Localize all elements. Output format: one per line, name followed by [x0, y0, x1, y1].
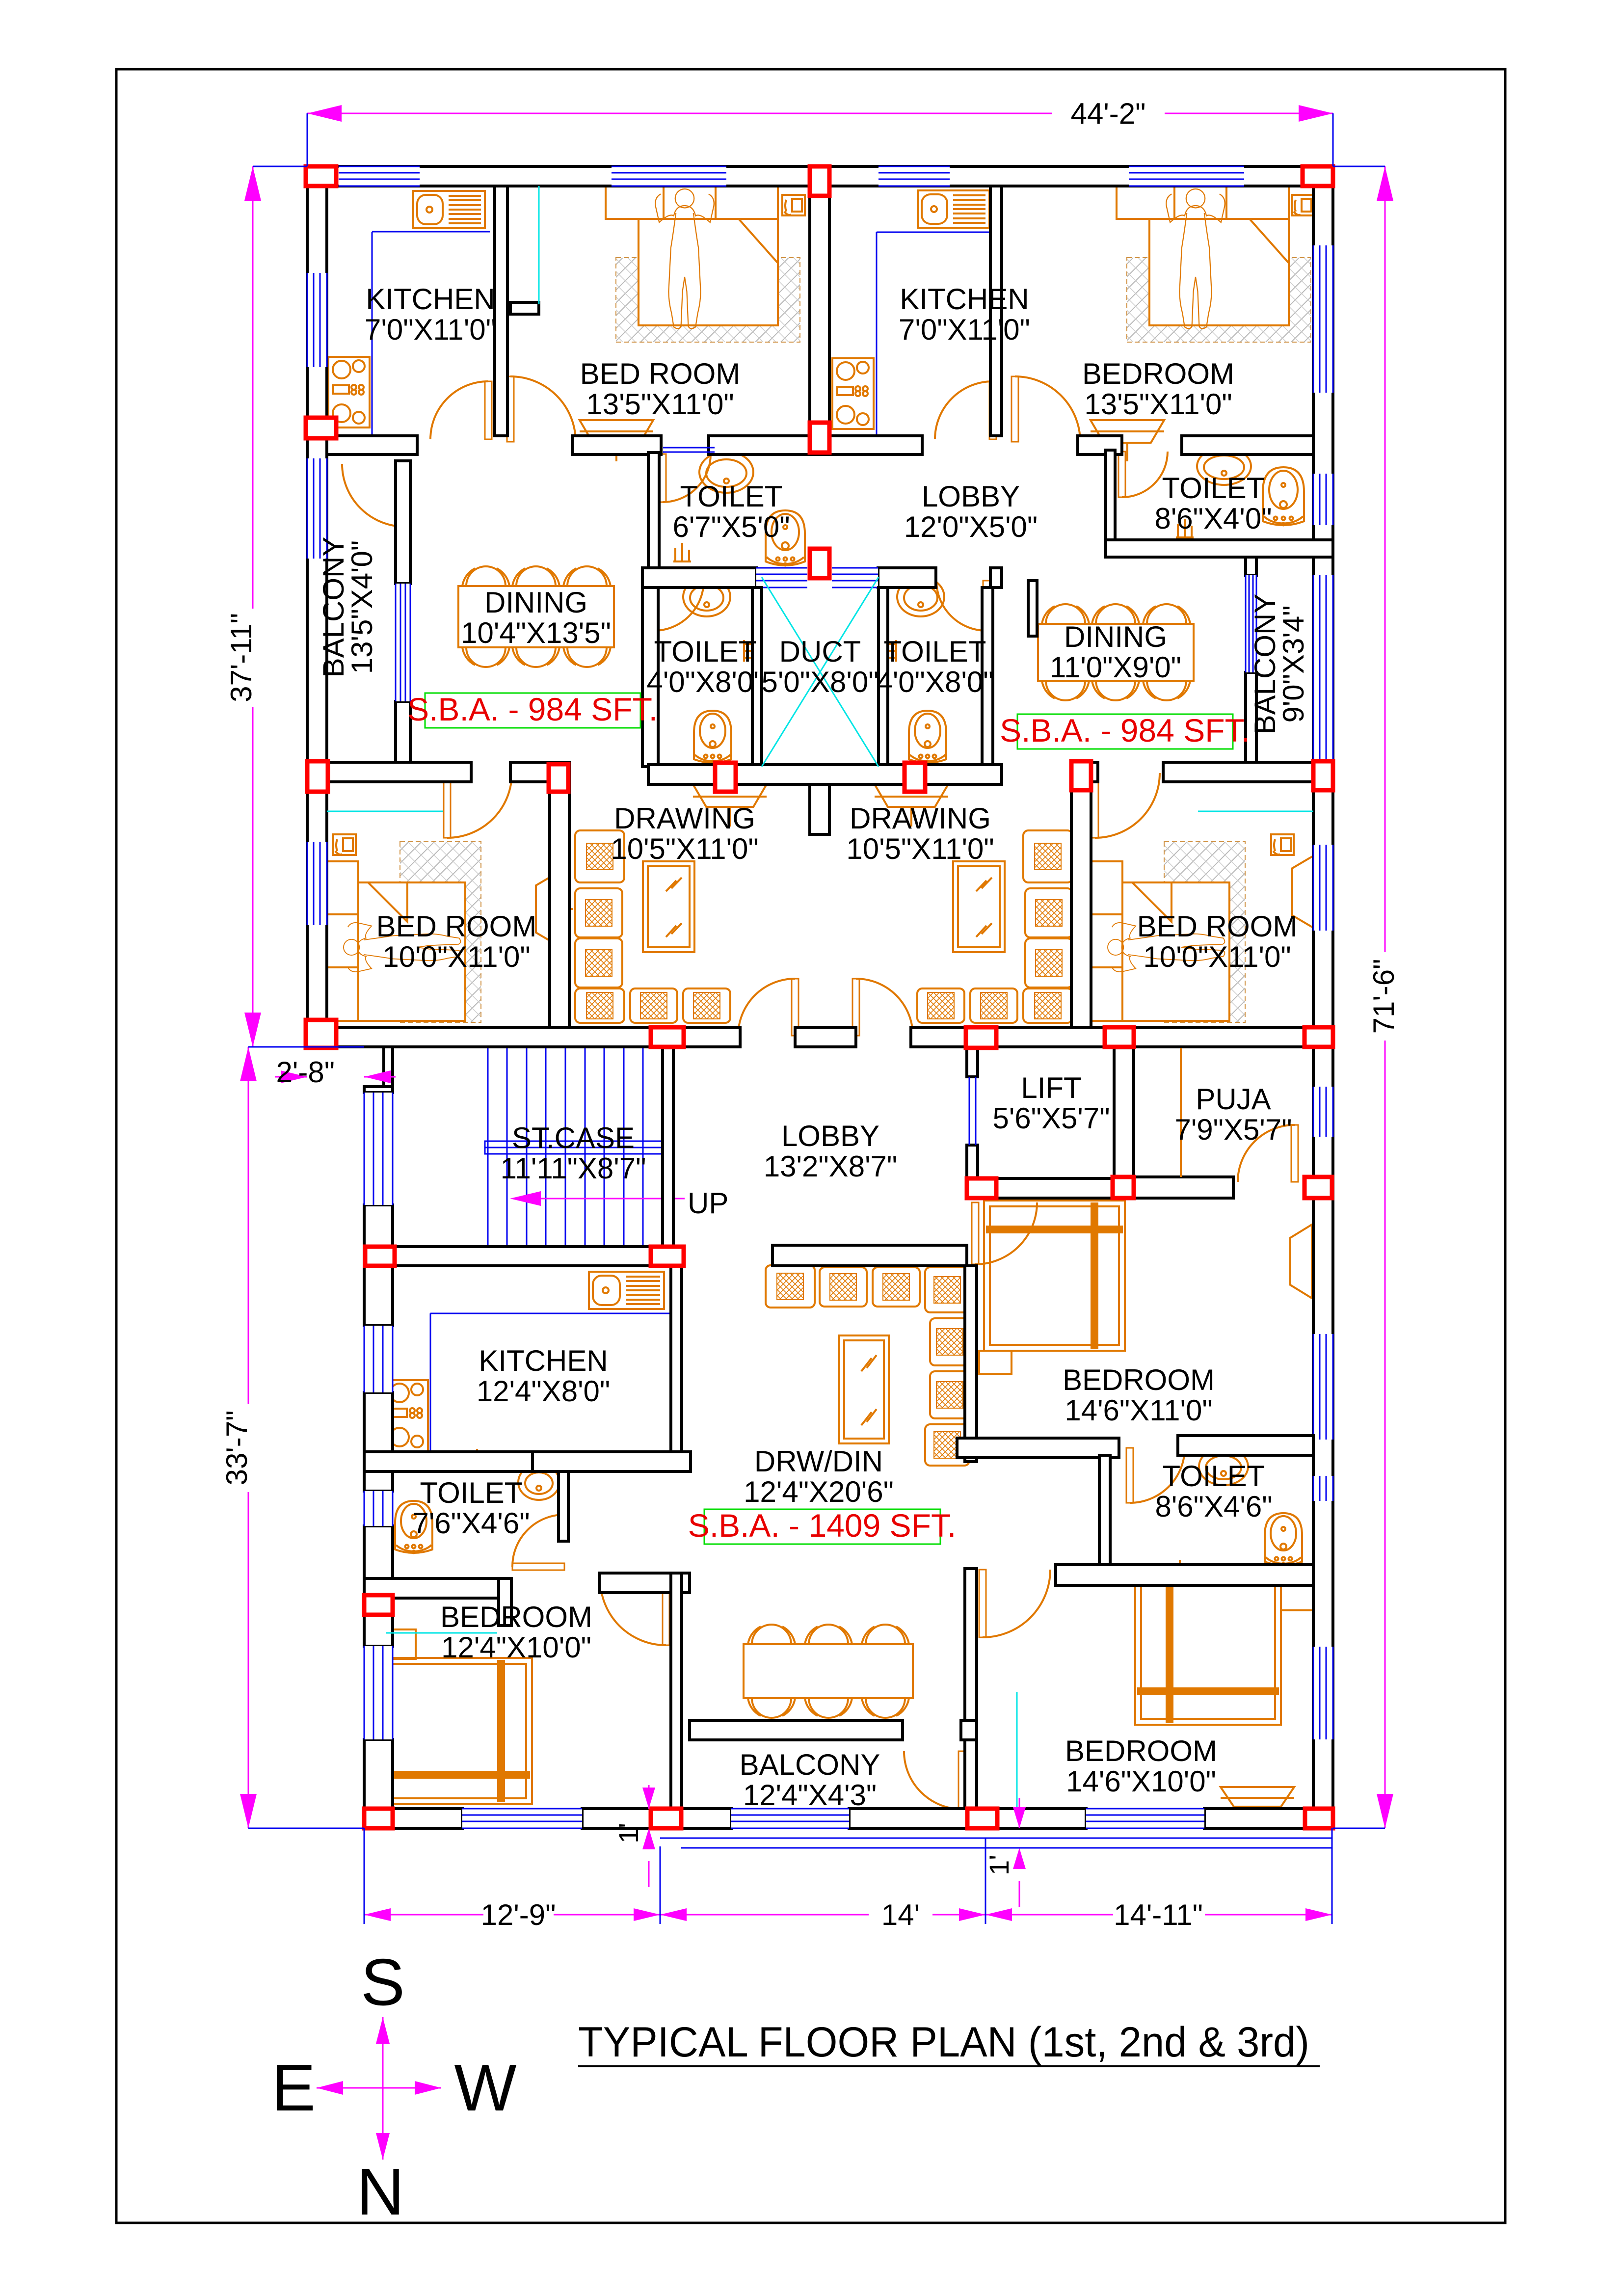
svg-text:9'0"X3'4": 9'0"X3'4" [1277, 605, 1310, 722]
svg-text:37'-11": 37'-11" [225, 613, 258, 702]
svg-text:11'11"X8'7": 11'11"X8'7" [501, 1152, 646, 1185]
svg-text:DRW/DIN: DRW/DIN [754, 1445, 883, 1478]
svg-text:DUCT: DUCT [779, 635, 861, 668]
svg-text:BEDROOM: BEDROOM [1065, 1735, 1217, 1767]
svg-text:BEDROOM: BEDROOM [1082, 357, 1234, 390]
svg-text:1': 1' [613, 1823, 644, 1843]
svg-text:13'5"X4'0": 13'5"X4'0" [346, 540, 378, 674]
svg-text:7'0"X11'0": 7'0"X11'0" [365, 313, 496, 346]
svg-text:12'-9": 12'-9" [481, 1898, 556, 1931]
svg-text:14': 14' [881, 1898, 920, 1931]
svg-text:BALCONY: BALCONY [740, 1748, 880, 1781]
svg-text:4'0"X8'0": 4'0"X8'0" [876, 666, 993, 698]
svg-text:S.B.A. - 984 SFT.: S.B.A. - 984 SFT. [407, 691, 658, 727]
svg-text:DINING: DINING [1064, 620, 1167, 653]
svg-text:5'6"X5'7": 5'6"X5'7" [992, 1102, 1110, 1135]
svg-text:10'5"X11'0": 10'5"X11'0" [611, 832, 758, 865]
svg-text:14'6"X11'0": 14'6"X11'0" [1065, 1394, 1212, 1427]
svg-text:7'9"X5'7": 7'9"X5'7" [1174, 1113, 1292, 1146]
svg-text:14'6"X10'0": 14'6"X10'0" [1066, 1765, 1216, 1798]
svg-text:10'0"X11'0": 10'0"X11'0" [382, 940, 530, 973]
svg-text:7'6"X4'6": 7'6"X4'6" [412, 1507, 530, 1540]
svg-text:7'0"X11'0": 7'0"X11'0" [899, 313, 1030, 346]
svg-text:12'4"X8'0": 12'4"X8'0" [477, 1375, 610, 1408]
svg-text:12'4"X20'6": 12'4"X20'6" [744, 1475, 894, 1508]
svg-text:10'0"X11'0": 10'0"X11'0" [1143, 940, 1291, 973]
svg-text:ST.CASE: ST.CASE [512, 1121, 635, 1154]
svg-text:TOILET: TOILET [654, 635, 757, 668]
svg-text:DRAWING: DRAWING [614, 802, 755, 835]
svg-text:TOILET: TOILET [420, 1476, 523, 1509]
svg-text:BED ROOM: BED ROOM [376, 910, 537, 943]
svg-text:KITCHEN: KITCHEN [366, 283, 495, 316]
svg-text:LOBBY: LOBBY [781, 1120, 879, 1152]
svg-text:33'-7": 33'-7" [220, 1411, 253, 1486]
svg-text:8'6"X4'0": 8'6"X4'0" [1154, 502, 1272, 535]
svg-text:BED ROOM: BED ROOM [1137, 910, 1298, 943]
svg-text:44'-2": 44'-2" [1071, 97, 1146, 130]
svg-text:BEDROOM: BEDROOM [1063, 1363, 1215, 1396]
svg-text:PUJA: PUJA [1196, 1083, 1271, 1116]
svg-text:N: N [356, 2155, 404, 2229]
svg-text:LIFT: LIFT [1021, 1071, 1081, 1104]
svg-text:13'2"X8'7": 13'2"X8'7" [764, 1150, 897, 1183]
svg-text:TOILET: TOILET [1163, 1460, 1265, 1493]
svg-text:TYPICAL FLOOR PLAN (1st, 2nd &: TYPICAL FLOOR PLAN (1st, 2nd & 3rd) [578, 2019, 1309, 2066]
svg-text:10'5"X11'0": 10'5"X11'0" [846, 832, 994, 865]
svg-text:S.B.A. - 984 SFT.: S.B.A. - 984 SFT. [1000, 712, 1250, 748]
svg-text:TOILET: TOILET [680, 480, 783, 513]
svg-text:5'0"X8'0": 5'0"X8'0" [761, 666, 879, 698]
svg-text:8'6"X4'6": 8'6"X4'6" [1155, 1490, 1272, 1523]
svg-text:4'0"X8'0": 4'0"X8'0" [646, 666, 764, 698]
svg-text:12'0"X5'0": 12'0"X5'0" [904, 510, 1038, 543]
svg-text:71'-6": 71'-6" [1367, 959, 1400, 1034]
svg-text:BALCONY: BALCONY [1249, 594, 1281, 735]
svg-text:UP: UP [688, 1187, 728, 1220]
svg-text:12'4"X10'0": 12'4"X10'0" [441, 1631, 591, 1664]
svg-text:BALCONY: BALCONY [317, 537, 350, 678]
svg-text:TOILET: TOILET [1162, 472, 1265, 505]
svg-text:1': 1' [984, 1855, 1014, 1875]
svg-text:E: E [271, 2051, 316, 2125]
svg-text:BEDROOM: BEDROOM [440, 1601, 592, 1633]
svg-text:13'5"X11'0": 13'5"X11'0" [586, 388, 734, 421]
svg-text:LOBBY: LOBBY [922, 480, 1020, 513]
svg-text:2'-8": 2'-8" [276, 1056, 335, 1089]
svg-text:13'5"X11'0": 13'5"X11'0" [1084, 388, 1232, 421]
svg-text:S.B.A. - 1409 SFT.: S.B.A. - 1409 SFT. [688, 1507, 957, 1544]
svg-text:BED ROOM: BED ROOM [580, 357, 741, 390]
svg-text:DINING: DINING [484, 586, 587, 619]
svg-text:W: W [454, 2051, 516, 2125]
svg-text:S: S [361, 1945, 405, 2019]
svg-text:DRAWING: DRAWING [850, 802, 991, 835]
svg-text:12'4"X4'3": 12'4"X4'3" [743, 1779, 877, 1812]
svg-text:11'0"X9'0": 11'0"X9'0" [1050, 651, 1181, 684]
svg-text:10'4"X13'5": 10'4"X13'5" [461, 616, 611, 649]
svg-text:KITCHEN: KITCHEN [479, 1344, 608, 1377]
svg-text:KITCHEN: KITCHEN [900, 283, 1029, 316]
svg-text:6'7"X5'0": 6'7"X5'0" [672, 510, 790, 543]
svg-text:14'-11": 14'-11" [1114, 1898, 1203, 1931]
svg-text:TOILET: TOILET [884, 635, 986, 668]
